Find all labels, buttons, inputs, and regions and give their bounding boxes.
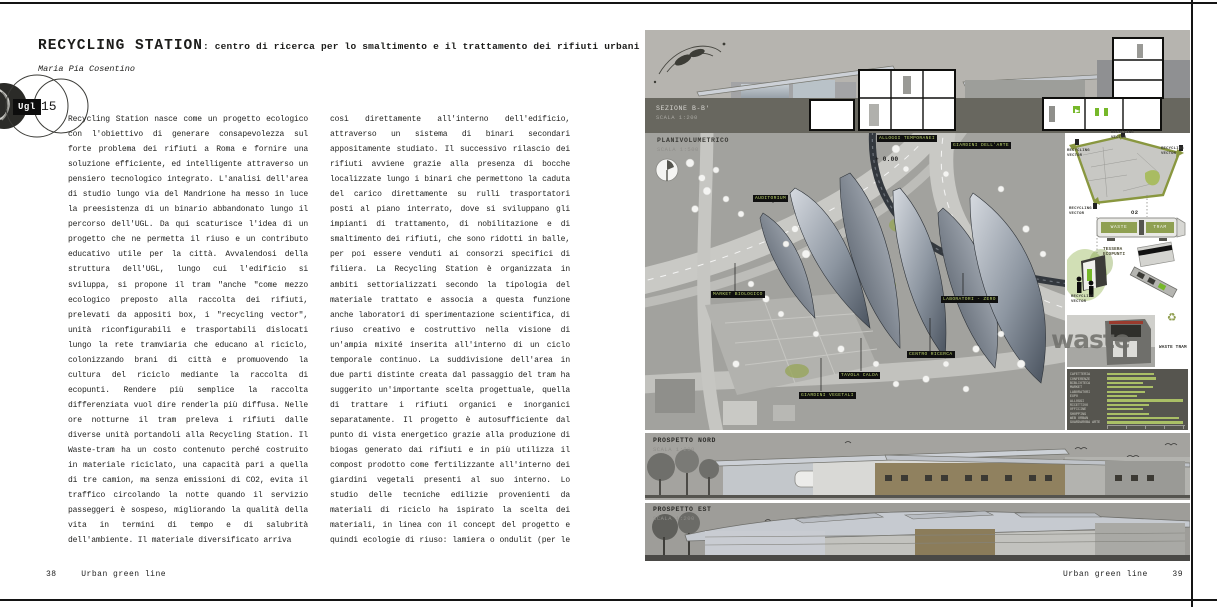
- chart-row-bar: [1107, 417, 1179, 419]
- chart-row-label: SHOPPING: [1070, 412, 1107, 416]
- left-page-number: 38: [46, 570, 57, 579]
- plan-level-mark: + 0.00: [875, 156, 898, 163]
- north-elevation-drawing: [645, 433, 1190, 500]
- ecopoints-bar-chart: CAFETTERIACONFERENZEBIBLIOTECAMARKETLABO…: [1067, 369, 1188, 430]
- plan-drawing: [645, 133, 1065, 430]
- ecopoints-card: [1138, 242, 1175, 267]
- chart-row-label: MARKET: [1070, 385, 1107, 389]
- page-title: RECYCLING STATION: centro di ricerca per…: [38, 38, 640, 54]
- left-footer: 38 Urban green line: [46, 570, 166, 579]
- vector-label-right: RECYCLING VECTOR: [1161, 147, 1191, 157]
- east-elevation-drawing: [645, 503, 1190, 561]
- chart-row-bar: [1107, 382, 1143, 384]
- plan-tag-tavola-calda: TAVOLA CALDA: [839, 372, 880, 379]
- vector-label-left: RECYCLING VECTOR: [1067, 149, 1097, 159]
- chart-row-label: OFFICINE: [1070, 407, 1107, 411]
- chart-row-bar: [1107, 391, 1145, 393]
- chart-row-label: GUARDAROBA ARTE: [1070, 420, 1107, 424]
- north-elevation-label: PROSPETTO NORD: [653, 437, 716, 444]
- compass-icon: [656, 159, 678, 181]
- chart-row-label: WEB URBAN: [1070, 416, 1107, 420]
- plan-tag-auditorium: AUDITORIUM: [753, 195, 788, 202]
- east-elevation-label: PROSPETTO EST: [653, 506, 712, 513]
- vector-label-top: RECYCLING VECTOR: [1111, 131, 1141, 141]
- text-column-1: Recycling Station nasce come un progetto…: [68, 112, 308, 548]
- sidebar-diagrams: RECYCLING VECTOR RECYCLING VECTOR RECYCL…: [1067, 133, 1190, 430]
- chart-row-label: CONFERENZE: [1070, 377, 1107, 381]
- chapter-badge: Ugl: [13, 99, 41, 115]
- plan-label: PLANIVOLUMETRICO: [657, 137, 729, 144]
- right-running-title: Urban green line: [1063, 570, 1148, 579]
- chart-row-bar: [1107, 404, 1149, 406]
- page-title-main: RECYCLING STATION: [38, 38, 203, 54]
- chart-row-bar: [1107, 413, 1149, 415]
- chart-row-label: EXPO: [1070, 394, 1107, 398]
- north-elevation-scale: SCALA 1:200: [653, 446, 695, 453]
- bottom-rule: [0, 599, 1217, 601]
- left-running-title: Urban green line: [81, 570, 166, 579]
- chart-row-bar: [1107, 421, 1183, 423]
- chart-row-label: RICETTIVO: [1070, 403, 1107, 407]
- section-label: SEZIONE B-B': [656, 105, 710, 112]
- top-rule: [0, 2, 1217, 4]
- vector-label-bottom: RECYCLING VECTOR: [1069, 207, 1099, 217]
- ecopoints-card-label: TESSERA ECOPUNTI: [1103, 247, 1133, 257]
- chart-row-label: ALLOGGI: [1070, 399, 1107, 403]
- plan-tag-giardini-arte: GIARDINI DELL'ARTE: [951, 142, 1011, 149]
- section-drawing: [645, 30, 1190, 133]
- conveyor-ramp: [1130, 267, 1177, 297]
- kiosk-label: RECYCLING VECTOR: [1071, 295, 1101, 305]
- plan-tag-giardini-vegetali: GIARDINI VEGETALI: [799, 392, 856, 399]
- chart-row-bar: [1107, 399, 1183, 401]
- text-column-2: così direttamente all'interno dell'edifi…: [330, 112, 570, 548]
- right-page-number: 39: [1172, 570, 1183, 579]
- tram-panel-label: TRAM: [1146, 222, 1174, 233]
- waste-panel-label: WASTE: [1101, 222, 1137, 233]
- plan-scale: SCALA 1:500: [657, 146, 699, 153]
- chart-row-bar: [1107, 377, 1156, 379]
- recycle-icon: ♻: [1167, 311, 1177, 324]
- chart-row-bar: [1107, 373, 1154, 375]
- chart-row-label: BIBLIOTECA: [1070, 381, 1107, 385]
- chart-row-label: LABORATORI: [1070, 390, 1107, 394]
- ecopoints-chart-rows: CAFETTERIACONFERENZEBIBLIOTECAMARKETLABO…: [1070, 372, 1185, 425]
- section-scale: SCALA 1:200: [656, 114, 698, 121]
- page-title-subtitle: : centro di ricerca per lo smaltimento e…: [203, 41, 640, 52]
- waste-photo-text: waste: [1051, 325, 1141, 354]
- right-footer: Urban green line 39: [983, 570, 1183, 579]
- east-elevation-scale: SCALA 1:200: [653, 515, 695, 522]
- chart-row-bar: [1107, 386, 1153, 388]
- book-spread: RECYCLING STATION: centro di ricerca per…: [0, 0, 1217, 607]
- waste-tram-label: WASTE TRAM: [1159, 345, 1187, 350]
- plan-tag-market: MARKET BIOLOGICO: [711, 291, 765, 298]
- plan-tag-laboratori: LABORATORI - ZERO: [941, 296, 998, 303]
- chart-row-bar: [1107, 408, 1143, 410]
- chapter-number: 15: [41, 99, 57, 114]
- right-page-edge-rule: [1191, 0, 1193, 607]
- chart-x-axis: [1107, 425, 1185, 429]
- chart-row-label: CAFETTERIA: [1070, 372, 1107, 376]
- plan-panel: PLANIVOLUMETRICO SCALA 1:500 + 0.00 ALLO…: [645, 133, 1065, 430]
- plan-tag-centro-ricerca: CENTRO RICERCA: [907, 351, 955, 358]
- plan-tag-alloggi: ALLOGGI TEMPORANEI: [877, 135, 937, 142]
- o2-label: O2: [1131, 209, 1139, 216]
- chart-row-bar: [1107, 395, 1137, 397]
